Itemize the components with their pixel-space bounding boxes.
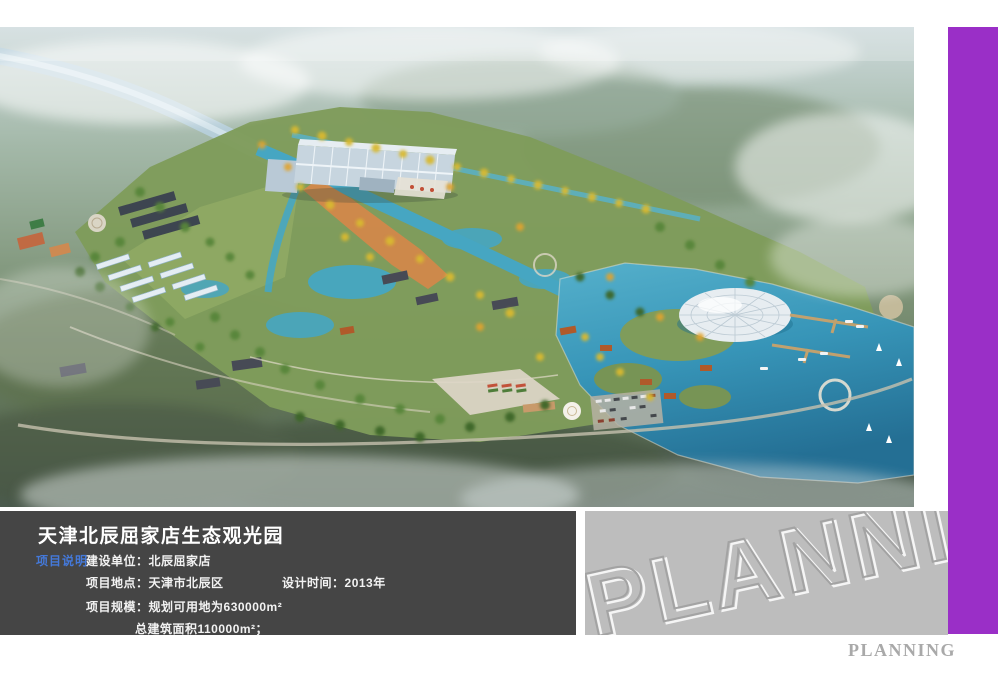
presentation-board: 天津北辰屈家店生态观光园 项目说明 建设单位：北辰屈家店 项目地点：天津市北辰区… bbox=[0, 0, 1000, 678]
page-title: 天津北辰屈家店生态观光园 bbox=[38, 521, 284, 548]
field-label: 建设单位： bbox=[86, 554, 149, 568]
field-project-location: 项目地点：天津市北辰区 bbox=[86, 574, 224, 591]
footer-brand: PLANNING bbox=[848, 640, 956, 661]
project-info-panel: 天津北辰屈家店生态观光园 项目说明 建设单位：北辰屈家店 项目地点：天津市北辰区… bbox=[0, 511, 576, 635]
watermark-box: PLANNING PLANNING bbox=[585, 511, 948, 635]
field-value: 2013年 bbox=[345, 576, 386, 590]
planning-watermark: PLANNING PLANNING bbox=[585, 511, 948, 635]
watermark-text: PLANNING bbox=[585, 511, 948, 635]
aerial-rendering bbox=[0, 27, 914, 507]
section-label: 项目说明 bbox=[36, 552, 88, 569]
field-label: 项目规模： bbox=[86, 600, 149, 614]
field-total-floor-area: 总建筑面积110000m²； bbox=[135, 620, 268, 637]
field-construction-unit: 建设单位：北辰屈家店 bbox=[86, 552, 211, 569]
aerial-rendering-image bbox=[0, 27, 914, 507]
field-label: 设计时间： bbox=[282, 576, 345, 590]
field-value: 北辰屈家店 bbox=[149, 554, 212, 568]
field-label: 项目地点： bbox=[86, 576, 149, 590]
accent-bar bbox=[948, 27, 998, 634]
field-value: 总建筑面积110000m²； bbox=[135, 622, 268, 636]
field-design-time: 设计时间：2013年 bbox=[282, 574, 386, 591]
field-project-scale: 项目规模：规划可用地为630000m² bbox=[86, 598, 282, 615]
field-value: 天津市北辰区 bbox=[149, 576, 224, 590]
field-value: 规划可用地为630000m² bbox=[149, 600, 283, 614]
